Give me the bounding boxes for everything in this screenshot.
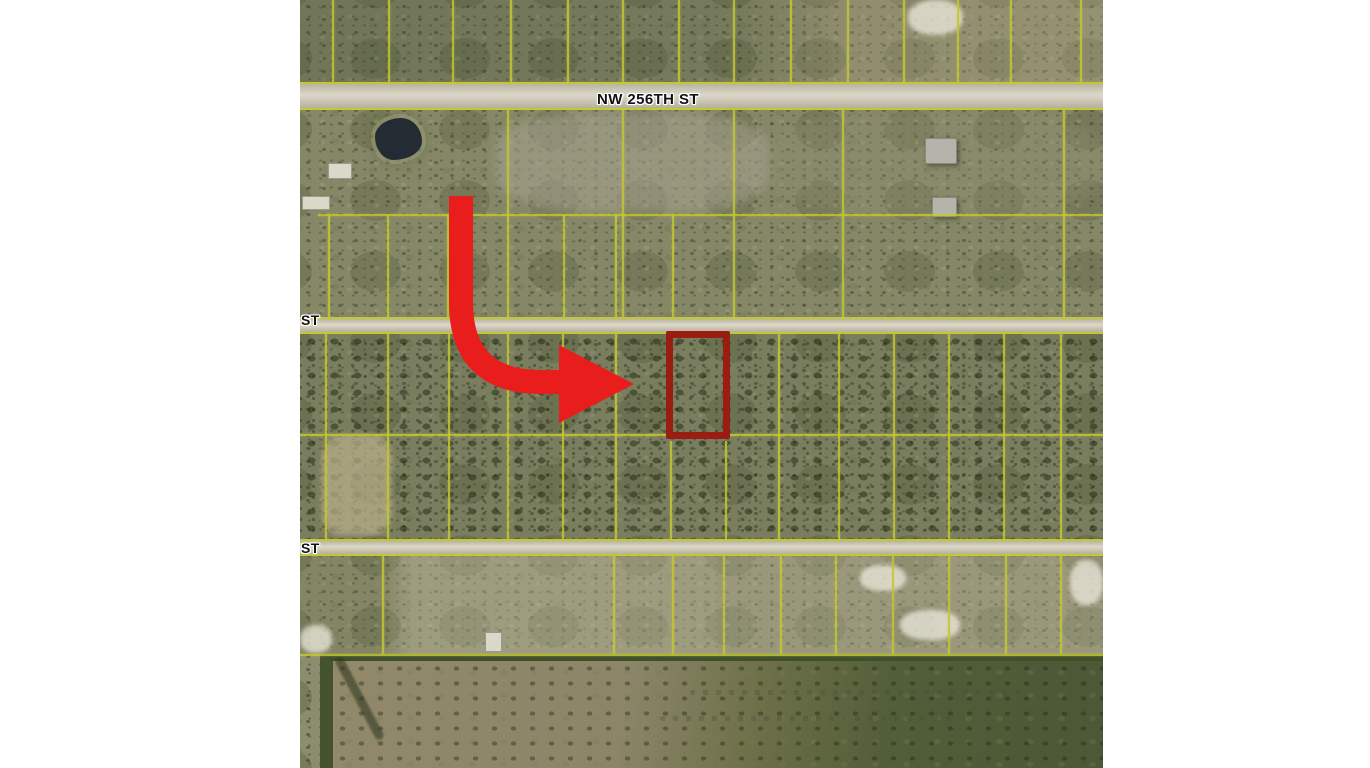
parcel-line-vertical xyxy=(893,333,895,539)
parcel-line-vertical xyxy=(1080,0,1082,82)
parcel-line-vertical xyxy=(615,214,617,317)
parcel-line-vertical xyxy=(615,333,617,539)
parcel-line-vertical xyxy=(567,0,569,82)
white-margin-right xyxy=(1103,0,1370,768)
street-label-st-upper: ST xyxy=(301,312,320,328)
parcel-line-horizontal xyxy=(318,214,1103,216)
parcel-line-vertical xyxy=(388,0,390,82)
parcel-line-vertical xyxy=(678,0,680,82)
street-label-nw-256th-st: NW 256TH ST xyxy=(597,91,699,108)
aerial-parcel-map: NW 256TH ST ST ST xyxy=(300,0,1103,768)
parcel-line-vertical xyxy=(892,556,894,654)
street-label-st-lower: ST xyxy=(301,540,320,556)
parcel-line-vertical xyxy=(670,441,672,539)
parcel-line-vertical xyxy=(387,214,389,317)
parcel-line-vertical xyxy=(382,556,384,654)
white-margin-left xyxy=(0,0,300,768)
parcel-line-vertical xyxy=(1010,0,1012,82)
parcel-line-vertical xyxy=(733,0,735,82)
parcel-line-vertical xyxy=(325,333,327,539)
parcel-line-vertical xyxy=(723,556,725,654)
parcel-line-vertical xyxy=(672,556,674,654)
parcel-line-vertical xyxy=(957,0,959,82)
parcel-line-vertical xyxy=(332,0,334,82)
parcel-line-vertical xyxy=(838,333,840,539)
parcel-line-vertical xyxy=(903,0,905,82)
parcel-line-vertical xyxy=(328,214,330,317)
parcel-line-vertical xyxy=(447,214,449,317)
parcel-line-vertical xyxy=(835,556,837,654)
parcel-line-vertical xyxy=(948,556,950,654)
parcel-line-vertical xyxy=(510,0,512,82)
parcel-line-vertical xyxy=(622,0,624,82)
parcel-line-vertical xyxy=(790,0,792,82)
parcel-line-vertical xyxy=(1060,333,1062,539)
parcel-line-vertical xyxy=(1003,333,1005,539)
parcel-line-vertical xyxy=(778,333,780,539)
parcel-line-vertical xyxy=(387,333,389,539)
parcel-line-vertical xyxy=(1060,556,1062,654)
parcel-line-vertical xyxy=(452,0,454,82)
parcel-line-horizontal xyxy=(300,654,1103,656)
parcel-line-vertical xyxy=(563,214,565,317)
parcel-line-vertical xyxy=(847,0,849,82)
parcel-line-vertical xyxy=(780,556,782,654)
highlighted-parcel-outline xyxy=(666,331,730,439)
parcel-line-vertical xyxy=(672,214,674,317)
parcel-line-vertical xyxy=(613,556,615,654)
parcel-line-vertical xyxy=(448,333,450,539)
road-nw-256th-st xyxy=(300,82,1103,110)
road-cross-lower xyxy=(300,539,1103,556)
parcel-line-vertical xyxy=(507,333,509,539)
parcel-line-vertical xyxy=(562,333,564,539)
parcel-line-vertical xyxy=(725,441,727,539)
parcel-line-vertical xyxy=(1005,556,1007,654)
parcel-line-vertical xyxy=(948,333,950,539)
